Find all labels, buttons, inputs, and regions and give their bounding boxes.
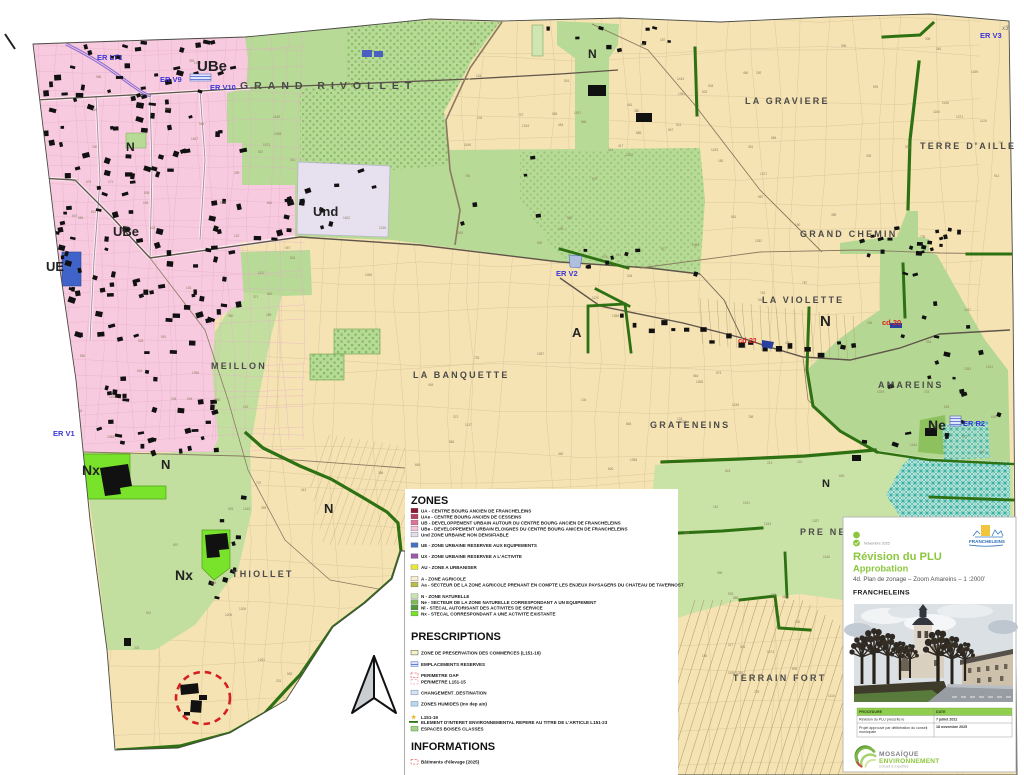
svg-text:1117: 1117 bbox=[258, 271, 265, 275]
svg-text:371: 371 bbox=[253, 295, 259, 299]
svg-text:341: 341 bbox=[290, 158, 296, 162]
svg-text:1157: 1157 bbox=[964, 308, 971, 312]
svg-text:587: 587 bbox=[758, 195, 764, 199]
svg-text:1358: 1358 bbox=[612, 314, 619, 318]
svg-text:ER R2: ER R2 bbox=[963, 419, 985, 428]
svg-text:Approbation: Approbation bbox=[853, 564, 909, 574]
svg-text:Bâtiments d'élevage (2025): Bâtiments d'élevage (2025) bbox=[421, 760, 480, 765]
svg-text:412: 412 bbox=[301, 488, 307, 492]
svg-text:MOSAÏQUE: MOSAÏQUE bbox=[879, 750, 919, 758]
svg-text:7 juillet 2022: 7 juillet 2022 bbox=[936, 718, 957, 722]
svg-text:534: 534 bbox=[708, 84, 714, 88]
svg-text:x3: x3 bbox=[1001, 26, 1009, 32]
svg-text:1097: 1097 bbox=[574, 111, 581, 115]
svg-text:1252: 1252 bbox=[755, 239, 762, 243]
svg-text:N: N bbox=[588, 47, 597, 61]
svg-text:municipale: municipale bbox=[859, 730, 876, 734]
svg-text:1206: 1206 bbox=[225, 613, 232, 617]
svg-text:457: 457 bbox=[285, 246, 291, 250]
svg-text:1474: 1474 bbox=[767, 650, 774, 654]
svg-text:1029: 1029 bbox=[877, 390, 884, 394]
svg-text:489: 489 bbox=[831, 213, 837, 217]
svg-text:399: 399 bbox=[261, 506, 267, 510]
svg-text:462: 462 bbox=[558, 452, 564, 456]
svg-text:518: 518 bbox=[944, 405, 950, 409]
svg-text:169: 169 bbox=[143, 201, 149, 205]
svg-text:380: 380 bbox=[634, 109, 640, 113]
svg-text:996: 996 bbox=[717, 571, 723, 575]
svg-text:628: 628 bbox=[684, 531, 690, 535]
svg-text:365: 365 bbox=[552, 112, 558, 116]
svg-text:672: 672 bbox=[962, 435, 968, 439]
svg-text:634: 634 bbox=[991, 415, 997, 419]
svg-text:521: 521 bbox=[290, 256, 296, 260]
svg-text:150: 150 bbox=[702, 654, 708, 658]
svg-text:787: 787 bbox=[802, 281, 808, 285]
svg-text:292: 292 bbox=[756, 71, 762, 75]
svg-text:1064: 1064 bbox=[692, 243, 699, 247]
svg-text:986: 986 bbox=[567, 216, 573, 220]
svg-text:674: 674 bbox=[86, 180, 92, 184]
svg-text:TERRE D'AILLE: TERRE D'AILLE bbox=[920, 141, 1016, 151]
svg-text:361: 361 bbox=[936, 47, 942, 51]
svg-text:117: 117 bbox=[728, 643, 733, 647]
svg-text:826: 826 bbox=[608, 467, 614, 471]
svg-text:ER V9: ER V9 bbox=[160, 75, 182, 84]
svg-text:THIOLLET: THIOLLET bbox=[232, 569, 294, 579]
svg-text:142: 142 bbox=[795, 620, 801, 624]
svg-text:727: 727 bbox=[518, 113, 524, 117]
svg-text:ER V10: ER V10 bbox=[210, 83, 236, 92]
svg-text:PRESCRIPTIONS: PRESCRIPTIONS bbox=[411, 631, 501, 643]
svg-text:UBe - DEVELOPPEMENT URBAIN ELO: UBe - DEVELOPPEMENT URBAIN ELOIGNES DU C… bbox=[421, 527, 627, 532]
svg-text:461: 461 bbox=[627, 103, 633, 107]
svg-text:N - ZONE NATURELLE: N - ZONE NATURELLE bbox=[421, 594, 469, 599]
svg-text:PERIMETRE OAP: PERIMETRE OAP bbox=[421, 673, 459, 678]
svg-text:840: 840 bbox=[267, 292, 273, 296]
svg-text:582: 582 bbox=[287, 672, 293, 676]
svg-text:494: 494 bbox=[428, 383, 434, 387]
svg-text:1245: 1245 bbox=[243, 507, 250, 511]
svg-text:551: 551 bbox=[161, 335, 167, 339]
svg-text:525: 525 bbox=[228, 507, 234, 511]
svg-text:386: 386 bbox=[378, 471, 384, 475]
svg-text:545: 545 bbox=[165, 107, 171, 111]
svg-text:1137: 1137 bbox=[465, 423, 472, 427]
svg-text:554: 554 bbox=[926, 340, 932, 344]
svg-text:884: 884 bbox=[449, 440, 455, 444]
svg-text:1354: 1354 bbox=[678, 92, 685, 96]
svg-text:cd 21: cd 21 bbox=[738, 336, 757, 345]
svg-text:UX - ZONE URBAINE RESERVEE A L: UX - ZONE URBAINE RESERVEE A L'ACTIVITE bbox=[421, 554, 522, 559]
svg-text:1245: 1245 bbox=[732, 403, 739, 407]
svg-text:AMAREINS: AMAREINS bbox=[878, 380, 944, 390]
svg-text:465: 465 bbox=[782, 595, 788, 599]
svg-text:941: 941 bbox=[146, 611, 152, 615]
svg-text:N: N bbox=[161, 457, 170, 472]
svg-text:Aa - SECTEUR DE LA ZONE AGRICO: Aa - SECTEUR DE LA ZONE AGRICOLE PRENANT… bbox=[421, 583, 684, 588]
svg-text:684: 684 bbox=[771, 136, 777, 140]
svg-text:GRAND CHEMIN: GRAND CHEMIN bbox=[800, 229, 897, 239]
svg-text:1425: 1425 bbox=[711, 148, 718, 152]
svg-text:596: 596 bbox=[841, 44, 847, 48]
svg-text:400: 400 bbox=[785, 341, 791, 345]
svg-text:885: 885 bbox=[636, 131, 642, 135]
svg-text:N: N bbox=[822, 478, 830, 490]
svg-text:103: 103 bbox=[186, 286, 192, 290]
svg-text:591: 591 bbox=[873, 85, 879, 89]
svg-text:1100: 1100 bbox=[109, 395, 116, 399]
svg-text:1160: 1160 bbox=[933, 110, 940, 114]
svg-text:1371: 1371 bbox=[956, 115, 963, 119]
svg-text:Ne: Ne bbox=[928, 417, 946, 433]
svg-text:1234: 1234 bbox=[522, 124, 529, 128]
svg-text:547: 547 bbox=[258, 150, 264, 154]
svg-text:565: 565 bbox=[581, 120, 587, 124]
svg-text:160: 160 bbox=[795, 223, 801, 227]
svg-text:760: 760 bbox=[465, 174, 471, 178]
svg-text:UB - DEVELOPPEMENT URBAIN AUTO: UB - DEVELOPPEMENT URBAIN AUTOUR DU CENT… bbox=[421, 521, 621, 526]
svg-text:1146: 1146 bbox=[823, 555, 830, 559]
svg-text:LA GRAVIERE: LA GRAVIERE bbox=[745, 96, 830, 106]
svg-text:994: 994 bbox=[187, 397, 193, 401]
svg-text:TERRAIN FORT: TERRAIN FORT bbox=[733, 673, 826, 683]
svg-text:122: 122 bbox=[234, 234, 240, 238]
svg-text:ER V3: ER V3 bbox=[980, 31, 1002, 40]
svg-text:308: 308 bbox=[925, 37, 931, 41]
svg-text:110: 110 bbox=[797, 460, 802, 464]
svg-text:1458: 1458 bbox=[696, 380, 703, 384]
svg-text:ZONE DE PRESERVATION DES COMME: ZONE DE PRESERVATION DES COMMERCES (L151… bbox=[421, 651, 541, 656]
svg-text:286: 286 bbox=[905, 145, 911, 149]
svg-text:★: ★ bbox=[411, 714, 417, 721]
svg-text:733: 733 bbox=[474, 356, 480, 360]
svg-text:A: A bbox=[572, 325, 582, 340]
svg-text:ELEMENT D'INTERET ENVIRONNEMEN: ELEMENT D'INTERET ENVIRONNEMENTAL REPERE… bbox=[421, 720, 608, 725]
svg-text:Révision du PLU prescrite le: Révision du PLU prescrite le bbox=[859, 718, 904, 722]
svg-text:198: 198 bbox=[558, 227, 564, 231]
svg-text:ER LT1: ER LT1 bbox=[97, 53, 122, 62]
svg-text:Ne - SECTEUR DE LA ZONE NATURE: Ne - SECTEUR DE LA ZONE NATURELLE CORRES… bbox=[421, 600, 596, 605]
svg-text:206: 206 bbox=[867, 321, 873, 325]
svg-text:813: 813 bbox=[91, 210, 97, 214]
svg-text:103: 103 bbox=[477, 116, 483, 120]
svg-text:EMPLACEMENTS RESERVES: EMPLACEMENTS RESERVES bbox=[421, 662, 485, 667]
svg-text:UE - ZONE URBAINE RESERVEE AUX: UE - ZONE URBAINE RESERVEE AUX EQUIPEMEN… bbox=[421, 543, 537, 548]
svg-text:1136: 1136 bbox=[379, 226, 386, 230]
svg-text:248: 248 bbox=[171, 397, 177, 401]
svg-text:1402: 1402 bbox=[343, 216, 350, 220]
svg-text:628: 628 bbox=[138, 339, 144, 343]
svg-text:1444: 1444 bbox=[910, 443, 917, 447]
svg-text:912: 912 bbox=[994, 174, 1000, 178]
svg-text:120: 120 bbox=[243, 405, 249, 409]
svg-text:505: 505 bbox=[144, 191, 150, 195]
svg-text:N: N bbox=[324, 501, 333, 516]
svg-text:1357: 1357 bbox=[537, 352, 544, 356]
svg-text:Nl - STECAL AUTORISANT DES ACT: Nl - STECAL AUTORISANT DES ACTIVITES DE … bbox=[421, 606, 543, 611]
svg-text:417: 417 bbox=[618, 144, 624, 148]
svg-text:984: 984 bbox=[78, 216, 84, 220]
svg-text:864: 864 bbox=[626, 422, 632, 426]
svg-text:339: 339 bbox=[866, 154, 872, 158]
svg-text:1443: 1443 bbox=[677, 77, 684, 81]
svg-text:187: 187 bbox=[660, 38, 666, 42]
svg-text:Und ZONE URBAINE NON DENSIFIAB: Und ZONE URBAINE NON DENSIFIABLE bbox=[421, 533, 509, 538]
svg-text:351: 351 bbox=[748, 145, 754, 149]
svg-text:Novembre 2025: Novembre 2025 bbox=[864, 542, 890, 546]
svg-text:618: 618 bbox=[725, 469, 731, 473]
svg-text:675: 675 bbox=[592, 177, 598, 181]
svg-text:4d. Plan de zonage – Zoom Amar: 4d. Plan de zonage – Zoom Amareins – 1 :… bbox=[853, 576, 985, 583]
svg-text:UBe: UBe bbox=[113, 224, 139, 239]
svg-text:609: 609 bbox=[839, 474, 845, 478]
svg-text:1287: 1287 bbox=[812, 519, 819, 523]
svg-text:289: 289 bbox=[266, 313, 272, 317]
svg-text:1121: 1121 bbox=[592, 296, 599, 300]
svg-text:586: 586 bbox=[96, 75, 102, 79]
svg-text:641: 641 bbox=[616, 253, 622, 257]
svg-text:1149: 1149 bbox=[273, 115, 280, 119]
svg-text:624: 624 bbox=[150, 226, 156, 230]
svg-text:cd 20: cd 20 bbox=[882, 318, 901, 327]
svg-text:973: 973 bbox=[716, 371, 722, 375]
svg-text:259: 259 bbox=[234, 171, 240, 175]
svg-text:454: 454 bbox=[558, 123, 564, 127]
svg-text:947: 947 bbox=[668, 128, 674, 132]
svg-text:1296: 1296 bbox=[192, 371, 199, 375]
svg-text:564: 564 bbox=[693, 374, 699, 378]
svg-text:768: 768 bbox=[748, 415, 754, 419]
svg-text:UBe: UBe bbox=[197, 58, 227, 75]
svg-text:N: N bbox=[126, 140, 135, 154]
svg-text:850: 850 bbox=[80, 354, 86, 358]
svg-text:Nx: Nx bbox=[82, 462, 100, 478]
svg-text:680: 680 bbox=[733, 596, 739, 600]
svg-text:230: 230 bbox=[92, 145, 98, 149]
svg-text:231: 231 bbox=[276, 679, 282, 683]
svg-text:678: 678 bbox=[602, 255, 608, 259]
svg-text:Nx - STECAL CORRESPONDANT A UN: Nx - STECAL CORRESPONDANT A UNE ACTIVITE… bbox=[421, 612, 555, 617]
svg-text:372: 372 bbox=[453, 415, 459, 419]
svg-text:326: 326 bbox=[92, 108, 98, 112]
svg-text:ER V2: ER V2 bbox=[556, 269, 578, 278]
svg-text:983: 983 bbox=[211, 581, 217, 585]
svg-text:1498: 1498 bbox=[274, 132, 281, 136]
svg-text:530: 530 bbox=[537, 241, 543, 245]
svg-text:PERIMETRE L151-15: PERIMETRE L151-15 bbox=[421, 680, 466, 685]
svg-text:1088: 1088 bbox=[107, 435, 114, 439]
svg-text:729: 729 bbox=[754, 690, 760, 694]
svg-text:CHANGEMENT_DESTINATION: CHANGEMENT_DESTINATION bbox=[421, 690, 487, 695]
svg-text:1119: 1119 bbox=[980, 119, 987, 123]
svg-text:ESPACES BOISES CLASSES: ESPACES BOISES CLASSES bbox=[421, 727, 484, 732]
svg-text:MEILLON: MEILLON bbox=[211, 361, 267, 371]
svg-text:1196: 1196 bbox=[464, 143, 471, 147]
svg-text:PROCEDURE: PROCEDURE bbox=[859, 710, 883, 714]
svg-text:950: 950 bbox=[228, 314, 234, 318]
svg-text:171: 171 bbox=[108, 180, 114, 184]
svg-text:1243: 1243 bbox=[764, 522, 771, 526]
svg-text:LA BANQUETTE: LA BANQUETTE bbox=[413, 370, 510, 380]
svg-text:901: 901 bbox=[564, 79, 570, 83]
svg-text:1114: 1114 bbox=[828, 694, 835, 698]
svg-text:A - ZONE AGRICOLE: A - ZONE AGRICOLE bbox=[421, 577, 466, 582]
svg-text:1099: 1099 bbox=[456, 231, 463, 235]
svg-text:285: 285 bbox=[979, 450, 985, 454]
svg-text:ZONES HUMIDES (inv dep ain): ZONES HUMIDES (inv dep ain) bbox=[421, 702, 487, 707]
svg-text:895: 895 bbox=[792, 667, 798, 671]
svg-text:921: 921 bbox=[676, 123, 682, 127]
svg-text:697: 697 bbox=[173, 543, 179, 547]
svg-text:561: 561 bbox=[731, 215, 737, 219]
svg-text:Nx: Nx bbox=[175, 567, 193, 583]
svg-text:913: 913 bbox=[740, 645, 746, 649]
svg-text:1439: 1439 bbox=[971, 70, 978, 74]
svg-text:DATE: DATE bbox=[936, 710, 946, 714]
svg-text:PRE NE: PRE NE bbox=[800, 527, 847, 537]
svg-text:304: 304 bbox=[627, 274, 633, 278]
svg-text:N: N bbox=[820, 313, 831, 330]
svg-text:Révision du PLU: Révision du PLU bbox=[853, 551, 942, 563]
svg-text:ER V1: ER V1 bbox=[53, 429, 75, 438]
svg-text:LA VIOLETTE: LA VIOLETTE bbox=[762, 295, 844, 305]
svg-text:492: 492 bbox=[640, 43, 646, 47]
svg-text:611: 611 bbox=[771, 593, 776, 597]
svg-text:Und: Und bbox=[313, 204, 338, 219]
svg-text:314: 314 bbox=[608, 148, 614, 152]
svg-text:214: 214 bbox=[767, 461, 773, 465]
svg-text:861: 861 bbox=[267, 201, 273, 205]
svg-text:1467: 1467 bbox=[191, 137, 198, 141]
svg-text:1358: 1358 bbox=[630, 458, 637, 462]
svg-text:1073: 1073 bbox=[263, 143, 270, 147]
svg-text:240: 240 bbox=[73, 179, 79, 183]
svg-text:UAe - CENTRE BOURG ANCIEN DE C: UAe - CENTRE BOURG ANCIEN DE CESSEINS bbox=[421, 515, 521, 520]
svg-text:735: 735 bbox=[920, 235, 926, 239]
svg-text:Conseil & Expertise: Conseil & Expertise bbox=[879, 765, 909, 769]
svg-text:150: 150 bbox=[718, 159, 724, 163]
svg-text:1353: 1353 bbox=[964, 367, 971, 371]
svg-text:GRATENEINS: GRATENEINS bbox=[650, 420, 730, 430]
svg-text:578: 578 bbox=[220, 201, 226, 205]
svg-text:GRAND RIVOLLET: GRAND RIVOLLET bbox=[240, 80, 417, 92]
svg-text:AU - ZONE A URBANISER: AU - ZONE A URBANISER bbox=[421, 565, 477, 570]
svg-text:523: 523 bbox=[702, 90, 708, 94]
svg-text:ZONES: ZONES bbox=[411, 495, 448, 507]
svg-text:737: 737 bbox=[256, 481, 262, 485]
svg-text:FRANCHELEINS: FRANCHELEINS bbox=[969, 539, 1005, 544]
svg-text:647: 647 bbox=[72, 214, 78, 218]
svg-text:649: 649 bbox=[137, 369, 143, 373]
svg-text:1371: 1371 bbox=[760, 172, 767, 176]
svg-text:1146: 1146 bbox=[942, 101, 949, 105]
svg-text:18 novembre 2025: 18 novembre 2025 bbox=[936, 725, 967, 729]
svg-text:1241: 1241 bbox=[986, 365, 993, 369]
svg-text:964: 964 bbox=[199, 122, 205, 126]
svg-text:649: 649 bbox=[415, 463, 421, 467]
svg-text:1184: 1184 bbox=[626, 153, 633, 157]
svg-text:151: 151 bbox=[713, 505, 719, 509]
svg-text:384: 384 bbox=[215, 398, 221, 402]
svg-text:1006: 1006 bbox=[365, 273, 372, 277]
svg-text:134: 134 bbox=[581, 398, 587, 402]
svg-text:FRANCHELEINS: FRANCHELEINS bbox=[853, 590, 910, 597]
svg-text:1191: 1191 bbox=[743, 501, 750, 505]
svg-text:INFORMATIONS: INFORMATIONS bbox=[411, 741, 495, 753]
svg-text:203: 203 bbox=[134, 646, 140, 650]
svg-text:460: 460 bbox=[743, 71, 749, 75]
svg-text:UE: UE bbox=[46, 259, 64, 274]
svg-text:1427: 1427 bbox=[469, 42, 476, 46]
svg-text:877: 877 bbox=[661, 247, 667, 251]
svg-text:1206: 1206 bbox=[239, 607, 246, 611]
svg-text:1261: 1261 bbox=[258, 658, 265, 662]
svg-text:UA - CENTRE BOURG ANCIEN DE FR: UA - CENTRE BOURG ANCIEN DE FRANCHELEINS bbox=[421, 509, 531, 514]
svg-text:723: 723 bbox=[924, 390, 930, 394]
svg-text:124: 124 bbox=[476, 74, 482, 78]
